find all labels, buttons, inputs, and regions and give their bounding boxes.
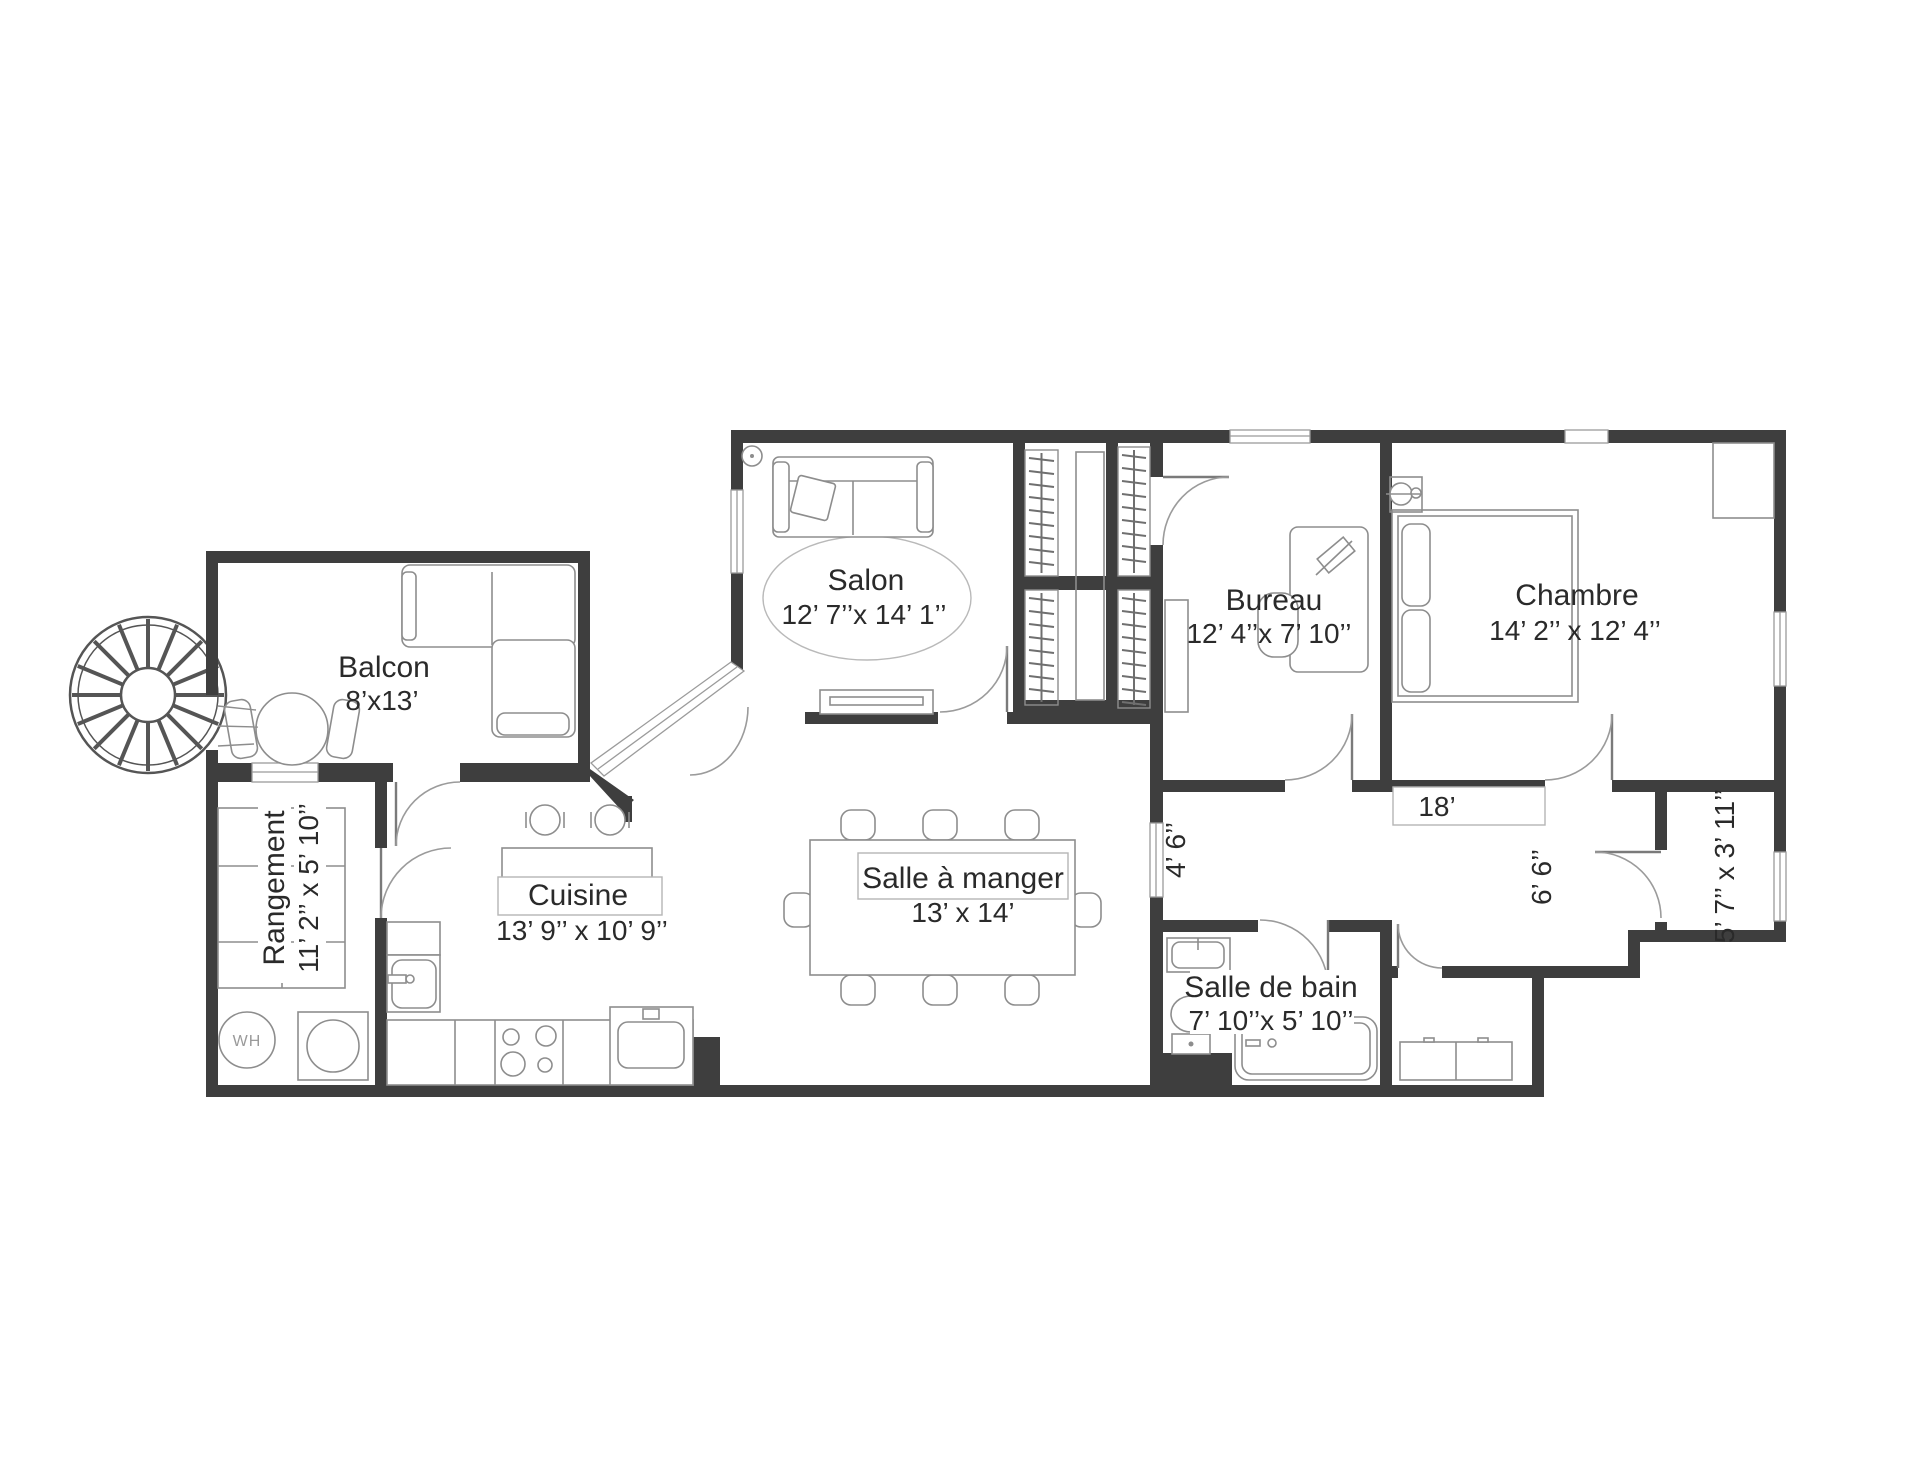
door-balcon-kitchen — [396, 782, 460, 846]
wardrobe-rail — [1025, 590, 1058, 705]
door-chambre — [1545, 714, 1612, 780]
sofa-pillow — [790, 475, 836, 521]
dim-entry-closet: 5’ 7’’ x 3’ 11’’ — [1709, 789, 1740, 943]
chambre-closet — [1713, 443, 1774, 518]
kitchen-faucet — [388, 975, 406, 983]
dims-bureau: 12’ 4’’x 7’ 10’’ — [1186, 618, 1351, 649]
dims-rangement: 11’ 2’’ x 5’ 10’’ — [293, 803, 324, 973]
floor-plan-page: Balcon 8’x13’ Salon 12’ 7’’x 14’ 1’’ Bur… — [0, 0, 1920, 1483]
door-entry — [1595, 852, 1661, 918]
dims-salon: 12’ 7’’x 14’ 1’’ — [781, 599, 946, 630]
wardrobe-rail — [1118, 447, 1150, 576]
pillow — [1402, 524, 1430, 606]
washer — [298, 1012, 368, 1080]
dim-hall-left: 4’ 6’’ — [1160, 822, 1191, 878]
label-balcon: Balcon — [338, 651, 430, 684]
bureau-shelf — [1165, 600, 1188, 712]
label-water-heater: WH — [233, 1033, 262, 1050]
dims-salle-a-manger: 13’ x 14’ — [911, 897, 1014, 928]
door-bureau-hall — [1285, 714, 1352, 780]
label-cuisine: Cuisine — [528, 879, 628, 912]
dims-salle-de-bain: 7’ 10’’x 5’ 10’’ — [1188, 1005, 1353, 1036]
window-chambre-top — [1565, 430, 1608, 443]
dims-balcon: 8’x13’ — [345, 685, 418, 716]
wardrobe-rail — [1025, 450, 1058, 576]
bathroom-vanity — [1167, 938, 1230, 972]
floor-plan: Balcon 8’x13’ Salon 12’ 7’’x 14’ 1’’ Bur… — [0, 0, 1920, 1483]
door-dresser-room — [1398, 924, 1442, 968]
label-chambre: Chambre — [1515, 579, 1638, 612]
bar-stools — [526, 805, 629, 835]
dims-chambre: 14’ 2’’ x 12’ 4’’ — [1489, 615, 1661, 646]
kitchen-left-cabinets — [387, 922, 440, 1012]
spiral-staircase — [70, 617, 226, 773]
label-rangement: Rangement — [258, 810, 291, 966]
label-salon: Salon — [828, 564, 905, 597]
dims-cuisine: 13’ 9’’ x 10’ 9’’ — [496, 915, 668, 946]
balcon-table-set — [223, 693, 361, 765]
wardrobe-rail — [1118, 590, 1150, 708]
door-rangement — [381, 848, 451, 918]
salon-sofa — [773, 457, 933, 537]
hall-length-box — [1393, 787, 1545, 825]
kitchen-bottom-counter — [387, 1007, 693, 1085]
salon-tv-console — [820, 690, 933, 714]
door-bureau-closet — [1163, 477, 1229, 545]
dim-hall-right: 6’ 6’’ — [1526, 849, 1557, 905]
door-diagonal-passage — [690, 707, 748, 775]
salon-rug — [763, 536, 971, 660]
dresser — [1400, 1038, 1512, 1080]
label-salle-a-manger: Salle à manger — [862, 862, 1064, 895]
pillow — [1402, 610, 1430, 692]
label-bureau: Bureau — [1226, 584, 1323, 617]
label-salle-de-bain: Salle de bain — [1184, 971, 1357, 1004]
kitchen-sink-faucet — [643, 1009, 659, 1019]
dim-hall-length: 18’ — [1418, 791, 1455, 822]
door-salon — [940, 646, 1007, 712]
